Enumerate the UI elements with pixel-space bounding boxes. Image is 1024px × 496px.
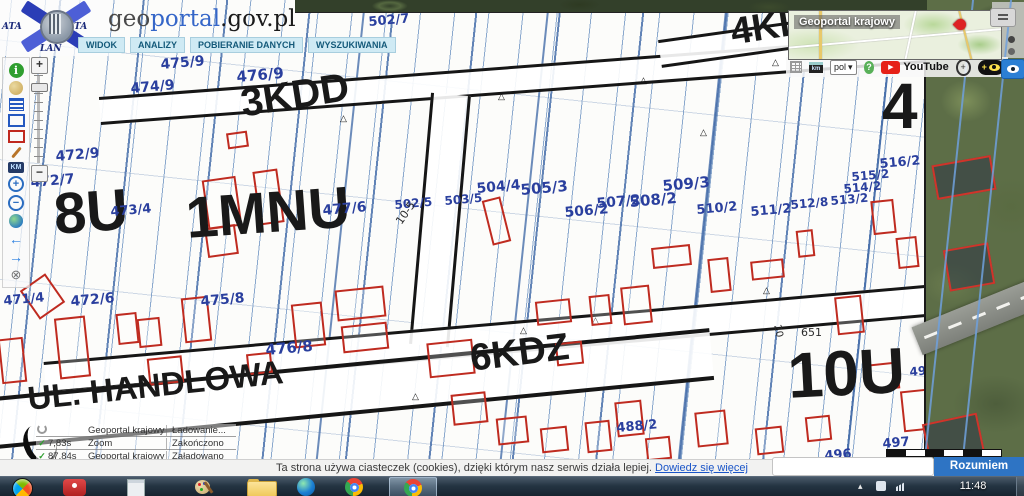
- close-icon[interactable]: ⊗: [7, 267, 25, 282]
- logo-text-fragment: ATA: [2, 22, 22, 32]
- building-outline: [651, 244, 692, 269]
- parcel-label: 511/2: [750, 202, 792, 219]
- eye-icon: [1007, 65, 1019, 73]
- parcel-label: 476/9: [236, 66, 284, 85]
- zoom-in-icon[interactable]: +: [8, 176, 24, 192]
- hatch-mark: △: [772, 58, 779, 67]
- building-outline: [584, 420, 612, 453]
- annotation-label: 651: [801, 327, 822, 338]
- paint-dot: [198, 483, 201, 486]
- youtube-button[interactable]: ▶YouTube: [881, 61, 948, 74]
- status-row: ✓7,83sZoomZakończono: [36, 437, 236, 450]
- main-menu: WIDOKANALIZYPOBIERANIE DANYCHWYSZUKIWANI…: [78, 37, 396, 53]
- building-outline: [137, 317, 163, 348]
- map-scale-bar: [886, 449, 1002, 457]
- layer-toggle-dot[interactable]: [1008, 36, 1015, 43]
- map-toolbar: iKM+−←→⊗: [2, 57, 30, 288]
- building-outline: [341, 322, 390, 354]
- help-icon[interactable]: ?: [864, 61, 875, 74]
- hatch-mark: △: [640, 76, 647, 85]
- language-value: pol: [834, 62, 846, 72]
- chevron-down-icon: ▾: [848, 62, 853, 73]
- building-outline: [707, 257, 731, 293]
- building-outline: [796, 229, 816, 258]
- parcel-label: 516/2: [879, 154, 921, 171]
- compass-icon[interactable]: +: [956, 59, 971, 76]
- building-outline: [750, 258, 785, 280]
- language-select[interactable]: pol▾: [830, 60, 857, 75]
- taskbar-browser[interactable]: [297, 478, 315, 496]
- building-outline: [535, 298, 572, 326]
- layer-toggle-dot[interactable]: [1008, 48, 1015, 55]
- building-outline: [540, 426, 569, 454]
- hatch-mark: △: [412, 392, 419, 401]
- minimap-expand-button[interactable]: [990, 8, 1016, 27]
- visibility-button[interactable]: [1001, 59, 1024, 79]
- grid-icon[interactable]: [790, 61, 802, 73]
- network-icon[interactable]: [896, 481, 907, 491]
- building-outline: [805, 415, 832, 442]
- building-outline: [895, 236, 919, 269]
- overview-minimap[interactable]: Geoportal krajowy: [788, 10, 1002, 60]
- parcel-label: 476/8: [265, 339, 313, 358]
- zoom-out-icon[interactable]: −: [8, 195, 24, 211]
- select-red-icon[interactable]: [8, 130, 25, 143]
- back-icon[interactable]: ←: [7, 231, 25, 246]
- legend-icon[interactable]: [9, 81, 23, 95]
- parcel-label: 473/4: [110, 202, 152, 219]
- aerial-building-outline: [943, 242, 996, 291]
- annotation-label: 20: [771, 324, 783, 339]
- building-outline: [620, 285, 653, 326]
- info-icon[interactable]: i: [9, 63, 24, 78]
- status-message: Ładowanie...: [172, 425, 236, 436]
- chrome-icon: [404, 479, 422, 496]
- list-icon: [998, 14, 1008, 22]
- parcel-label: 477/6: [322, 200, 367, 218]
- forward-icon[interactable]: →: [7, 249, 25, 264]
- status-row: Geoportal krajowyŁadowanie...: [36, 424, 236, 437]
- select-blue-icon[interactable]: [8, 114, 25, 127]
- hatch-mark: △: [763, 286, 770, 295]
- status-message: Zakończono: [172, 438, 236, 449]
- draw-icon[interactable]: [11, 147, 22, 159]
- tab-pobieranie-danych[interactable]: POBIERANIE DANYCH: [190, 37, 303, 53]
- building-outline: [496, 415, 530, 445]
- hatch-mark: △: [340, 114, 347, 123]
- tab-widok[interactable]: WIDOK: [78, 37, 125, 53]
- tab-analizy[interactable]: ANALIZY: [130, 37, 185, 53]
- check-icon: ✓: [36, 438, 48, 449]
- minimap-title: Geoportal krajowy: [794, 15, 900, 29]
- zoom-in-button[interactable]: +: [31, 57, 48, 74]
- tray-expand-icon[interactable]: ▴: [858, 481, 863, 492]
- building-outline: [54, 316, 91, 380]
- layers-icon[interactable]: [9, 98, 24, 111]
- taskbar-chrome[interactable]: [345, 478, 363, 496]
- zone-label: 4: [882, 74, 918, 138]
- parcel-label: 509/3: [662, 175, 710, 194]
- logo-building-icon: [49, 14, 61, 34]
- spinner-icon: [36, 424, 48, 437]
- cookie-text: Ta strona używa ciasteczek (cookies), dz…: [276, 462, 655, 474]
- show-desktop-button[interactable]: [1016, 477, 1024, 496]
- minimap-road: [957, 10, 976, 60]
- building-outline: [226, 131, 249, 150]
- cookie-accept-button[interactable]: Rozumiem: [934, 457, 1024, 476]
- taskbar-app-notes[interactable]: [127, 479, 145, 496]
- plus-icon: +: [982, 62, 987, 72]
- taskbar-clock: 11:48: [938, 480, 1008, 492]
- parcel-label: 505/3: [520, 179, 568, 198]
- building-outline: [450, 391, 488, 425]
- status-source: Geoportal krajowy: [88, 425, 167, 436]
- parcel-label: 512/8: [790, 196, 829, 211]
- parcel-label: 504/4: [476, 178, 521, 196]
- parcel-label: 474/9: [130, 78, 175, 96]
- status-source: Zoom: [88, 438, 167, 449]
- hatch-mark: △: [700, 128, 707, 137]
- paint-dot: [200, 488, 203, 491]
- tray-icon[interactable]: [876, 481, 886, 491]
- brand-geo: geo: [108, 6, 150, 32]
- taskbar-app-paint[interactable]: [193, 479, 219, 495]
- eye-icon: [989, 64, 1000, 71]
- location-marker-icon: [953, 17, 969, 33]
- parcel-label: 488/2: [616, 418, 658, 435]
- windows-taskbar: ▴ 11:48: [0, 476, 1024, 496]
- building-outline: [115, 312, 139, 345]
- parcel-label: 475/9: [160, 54, 205, 72]
- play-icon: ▶: [881, 61, 900, 74]
- start-button[interactable]: [12, 478, 33, 496]
- taskbar-app-pin[interactable]: [63, 479, 86, 496]
- building-outline: [870, 199, 896, 235]
- notification-box[interactable]: [772, 457, 934, 476]
- parcel-label: 502/7: [368, 12, 410, 29]
- zoom-out-button[interactable]: −: [31, 165, 48, 182]
- tab-wyszukiwania[interactable]: WYSZUKIWANIA: [308, 37, 396, 53]
- parcel-label: 472/6: [70, 291, 115, 309]
- building-outline: [755, 426, 785, 456]
- brand-portal: portal: [150, 6, 220, 32]
- geoportal-app: 8U1MNU3KDD6KDZ4KL410UUL. HANDLOWA502/747…: [0, 0, 1024, 496]
- building-outline: [834, 295, 865, 336]
- building-outline: [0, 337, 27, 384]
- logo-text-fragment: TA: [74, 22, 87, 32]
- building-outline: [694, 409, 728, 447]
- parcel-label: 510/2: [696, 200, 738, 217]
- brand-suffix: .gov.pl: [220, 6, 296, 32]
- status-time: 7,83s: [48, 438, 88, 449]
- building-outline: [645, 436, 672, 461]
- scale-unit-icon[interactable]: km: [809, 62, 823, 73]
- parcel-label: 475/8: [200, 291, 245, 309]
- taskbar-explorer[interactable]: [247, 481, 277, 496]
- taskbar-chrome-active[interactable]: [389, 477, 437, 496]
- zoom-slider-handle[interactable]: [31, 83, 48, 92]
- globe-icon[interactable]: [9, 214, 23, 228]
- parcel-label: 471/4: [3, 291, 45, 308]
- cookie-more-link[interactable]: Dowiedz się więcej: [655, 462, 748, 474]
- building-outline: [335, 286, 387, 322]
- site-title: geoportal.gov.pl: [108, 6, 296, 32]
- map-options-bar: km pol▾ ? ▶YouTube + +: [786, 57, 1008, 77]
- zone-label: 10U: [786, 338, 907, 408]
- youtube-label: YouTube: [903, 61, 948, 73]
- building-outline: [588, 294, 612, 326]
- hatch-mark: △: [498, 92, 505, 101]
- loading-status-console: Geoportal krajowyŁadowanie...✓7,83sZoomZ…: [36, 424, 236, 463]
- logo-text-fragment: LAN: [40, 44, 62, 54]
- measure-icon[interactable]: KM: [8, 162, 24, 173]
- parcel-label: 472/9: [55, 146, 100, 164]
